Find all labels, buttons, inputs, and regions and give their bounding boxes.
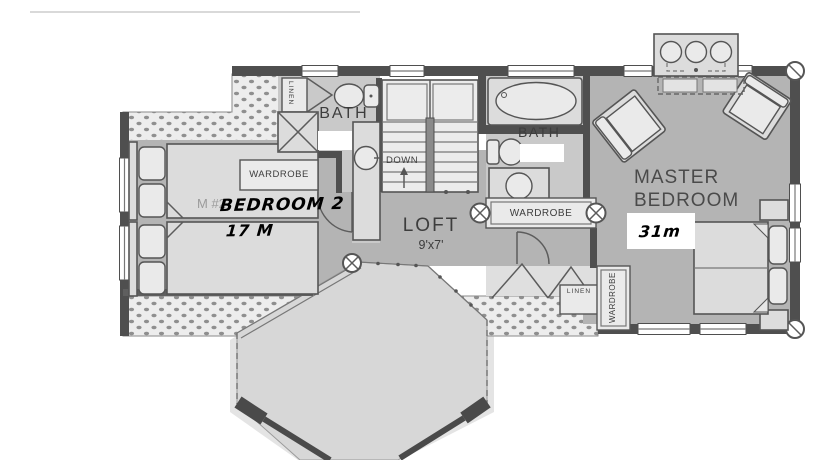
- post-icon: [343, 254, 361, 272]
- inner-wall: [590, 228, 597, 268]
- down-label: DOWN: [386, 156, 424, 166]
- loft-size-label: 9'x7': [395, 239, 467, 253]
- staircase: [382, 80, 478, 194]
- dresser-icon: [654, 34, 738, 76]
- hall-floor: [486, 228, 598, 266]
- whiteout-patch: 31m: [627, 213, 695, 249]
- nightstand-icon: [760, 200, 788, 220]
- vanity-sink: [353, 122, 380, 240]
- master-bedroom-label: MASTER BEDROOM: [634, 166, 739, 212]
- bath2-label: BATH: [518, 125, 570, 140]
- linen2-label: LINEN: [560, 288, 598, 295]
- stair-rail: [426, 118, 434, 192]
- linen1-label: LINEN: [287, 81, 294, 111]
- annotation-bedroom2-area: 17 M: [225, 221, 275, 241]
- bathtub-icon: [488, 78, 582, 125]
- artifact-line: [30, 11, 360, 13]
- wardrobe1-label: WARDROBE: [240, 160, 318, 190]
- wardrobe3-label: WARDROBE: [597, 266, 630, 330]
- toilet-icon: [487, 139, 523, 165]
- left-wall: [120, 112, 129, 336]
- whiteout-patch: [318, 131, 352, 150]
- whiteout-patch: [520, 144, 564, 162]
- inner-wall: [336, 151, 342, 193]
- inner-wall: [478, 76, 486, 134]
- annotation-bedroom2-name: BEDROOM 2: [219, 194, 345, 216]
- loft-label: LOFT: [395, 216, 467, 237]
- shower-icon: [278, 112, 318, 152]
- bath1-label: BATH: [314, 105, 374, 123]
- floor-plan: BATH LINEN WARDROBE M #2 DOWN LOFT 9'x7'…: [0, 0, 840, 460]
- wardrobe2-label: WARDROBE: [486, 198, 596, 228]
- annotation-master-area: 31m: [626, 221, 682, 241]
